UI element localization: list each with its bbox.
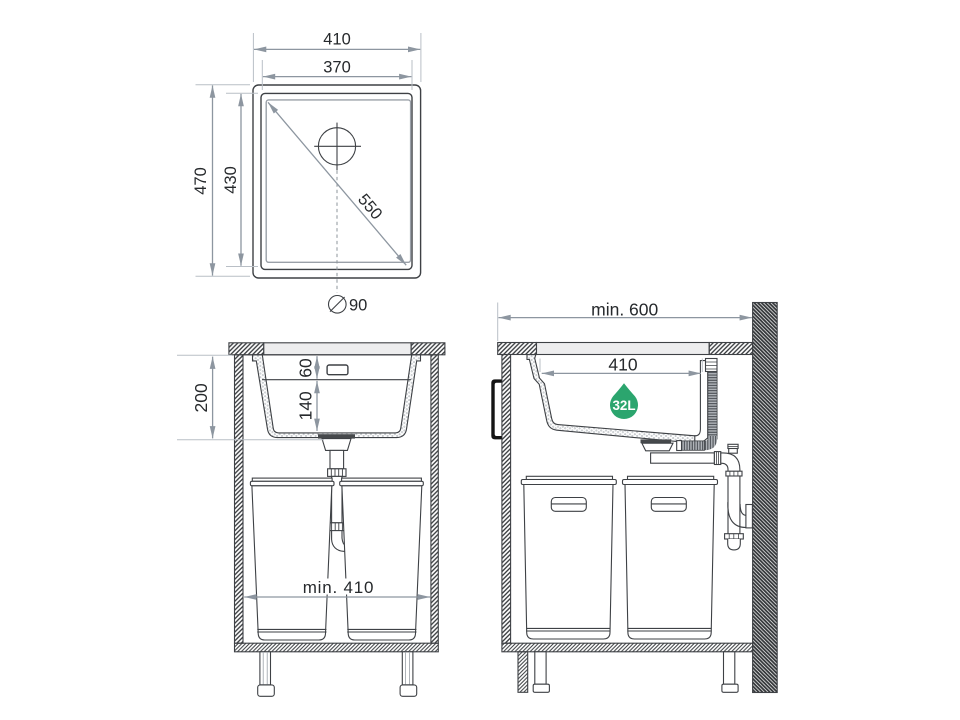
svg-text:430: 430 [222, 166, 240, 194]
svg-text:90: 90 [349, 296, 367, 314]
svg-text:370: 370 [323, 59, 351, 77]
svg-text:410: 410 [323, 31, 351, 49]
svg-text:min. 600: min. 600 [591, 299, 658, 319]
svg-text:140: 140 [295, 391, 315, 420]
svg-text:200: 200 [191, 383, 211, 412]
svg-text:32L: 32L [612, 398, 635, 413]
svg-text:550: 550 [354, 191, 386, 224]
svg-text:470: 470 [192, 167, 210, 195]
svg-text:60: 60 [295, 358, 315, 378]
svg-text:min. 410: min. 410 [303, 578, 375, 597]
svg-text:410: 410 [608, 355, 637, 375]
